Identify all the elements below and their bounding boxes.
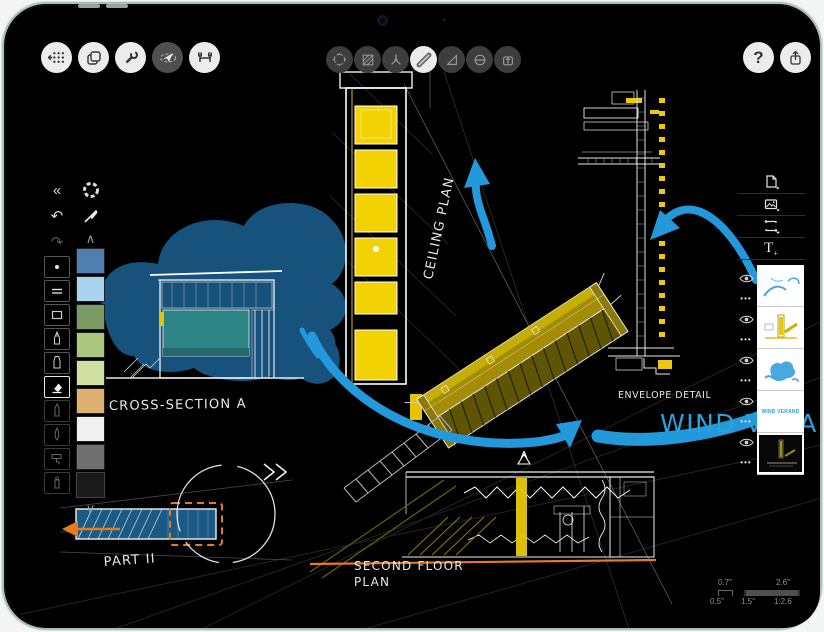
layer1-options-button[interactable]: ••• [736,290,756,306]
selection-button[interactable] [152,42,183,73]
scale-screen-small: 0.7″ [718,578,732,587]
tool-fineliner[interactable] [44,328,70,350]
swatch-white[interactable] [76,416,105,442]
help-button[interactable]: ? [743,42,774,73]
new-frame-button[interactable] [736,216,806,237]
redo-icon: ↷ [51,233,64,251]
eye-icon [739,396,754,407]
new-page-button[interactable] [736,172,806,193]
swatch-light-blue[interactable] [76,276,105,302]
layer5-options-button[interactable]: ••• [736,454,756,470]
layer5-visibility-toggle[interactable] [736,434,756,450]
tool-eraser[interactable] [44,376,70,398]
base-thumb-art [759,436,803,472]
import-image-button[interactable] [736,194,806,215]
fill-tool-button[interactable] [354,46,381,73]
move-icon [332,52,347,67]
cross-section-label: CROSS-SECTION A [109,397,247,414]
eye-icon [739,355,754,366]
microphone-dot [443,18,446,21]
tool-airbrush[interactable] [44,472,70,494]
tool-roller[interactable] [44,448,70,470]
layer3-options-button[interactable]: ••• [736,372,756,388]
pages-icon [86,50,102,66]
layer1-visibility-toggle[interactable] [736,270,756,286]
second-floor-label-2: PLAN [354,575,390,589]
move-tool-button[interactable] [326,46,353,73]
help-icon: ? [753,48,763,68]
eraser-icon [50,380,64,395]
axon-box [405,272,640,455]
yellow-thumb-art [759,310,803,346]
eye-icon [739,314,754,325]
layer4-options-button[interactable]: ••• [736,413,756,429]
scale-real-small: 0.5″ [710,597,724,606]
pencil-icon [53,403,61,419]
eyedropper-button[interactable] [78,204,104,228]
layer2-options-button[interactable]: ••• [736,331,756,347]
color-wheel-button[interactable] [78,178,104,202]
measure-bracket-icon [197,50,213,66]
triangle-ruler-icon [445,53,459,67]
drawing-canvas[interactable]: CROSS-SECTION A CEILING PLAN SECOND FLOO… [12,12,820,628]
marker-stroke-icon [416,52,432,68]
tool-double-line[interactable] [44,280,70,302]
add-frame-icon [763,218,780,235]
redo-button[interactable]: ↷ [44,230,70,254]
swatch-pale-green[interactable] [76,360,105,386]
undo-icon: ↶ [51,207,64,225]
slice-circle-icon [473,53,487,67]
layer-blue-wash-thumbnail[interactable] [757,349,804,391]
swatch-green[interactable] [76,332,105,358]
add-text-icon: T+ [764,240,778,258]
chevron-up-icon: ∧ [86,231,96,247]
chevron-down-icon: ∨ [86,501,96,517]
swatch-blue[interactable] [76,248,105,274]
filled-stroke-icon [50,309,64,321]
tool-pencil[interactable] [44,400,70,422]
swatch-scroll-down[interactable]: ∨ [86,500,96,518]
blob-thumb-art [759,352,803,388]
slice-tool-button[interactable] [466,46,493,73]
share-icon [788,50,803,66]
new-text-button[interactable]: T+ [736,238,806,259]
precision-button[interactable] [189,42,220,73]
mask-tool-button[interactable] [494,46,521,73]
swatch-olive-green[interactable] [76,304,105,330]
tool-dot-brush[interactable] [44,256,70,278]
pages-button[interactable] [78,42,109,73]
layer-title-thumbnail[interactable]: WIND VERAND [757,391,804,433]
swatch-gray[interactable] [76,444,105,470]
wrench-icon [123,50,139,66]
gallery-grid-icon [48,49,65,66]
layer2-visibility-toggle[interactable] [736,311,756,327]
layer-arrows-thumbnail[interactable] [757,265,804,307]
compass-tool-button[interactable] [382,46,409,73]
scale-real-large: 1:2.6 [774,597,792,606]
swatch-scroll-up[interactable]: ∧ [86,230,96,248]
paint-roller-icon [50,452,64,466]
ruler-tool-button[interactable] [438,46,465,73]
eye-icon [739,273,754,284]
marker-a-label: A [521,450,528,461]
swatch-tan[interactable] [76,388,105,414]
scale-screen-large: 2.6″ [776,578,790,587]
app-screen: CROSS-SECTION A CEILING PLAN SECOND FLOO… [12,12,820,628]
part-label: PART II [103,551,156,570]
front-camera [378,16,387,25]
screenshot-stage: CROSS-SECTION A CEILING PLAN SECOND FLOO… [0,0,824,632]
arrows-thumb-art [759,268,803,304]
brush-icon [52,427,62,443]
new-page-icon [763,174,780,191]
layer-base-drawing-thumbnail[interactable] [757,433,804,475]
paper-plane-icon [159,49,177,67]
ceiling-plan-label: CEILING PLAN [421,175,457,280]
scale-bracket [718,590,733,596]
volume-button-2 [106,4,128,8]
marker-icon [52,355,62,371]
layer4-visibility-toggle[interactable] [736,393,756,409]
color-wheel-icon [82,181,100,199]
tool-marker[interactable] [44,352,70,374]
layer-thumbnails: WIND VERAND [757,265,804,475]
collapse-sidebar-button[interactable]: « [44,178,70,202]
share-button[interactable] [780,42,811,73]
eyedropper-icon [83,208,99,224]
pen-tool-button[interactable] [410,46,437,73]
volume-button-1 [78,4,100,8]
tablet-device-frame: CROSS-SECTION A CEILING PLAN SECOND FLOO… [2,2,822,630]
airbrush-icon [52,475,62,491]
mask-import-icon [501,53,515,67]
layer-title-text: WIND VERAND [761,409,799,415]
layer3-visibility-toggle[interactable] [736,352,756,368]
fineliner-icon [52,331,62,347]
blue-wash-blob [101,203,346,384]
divider [737,259,805,260]
tool-filled-stroke[interactable] [44,304,70,326]
settings-button[interactable] [115,42,146,73]
tool-brush[interactable] [44,424,70,446]
scale-bar-segment [744,590,800,596]
layer-yellow-plans-thumbnail[interactable] [757,307,804,349]
swatch-black[interactable] [76,472,105,498]
gallery-button[interactable] [41,42,72,73]
collapse-icon: « [53,182,61,199]
add-image-icon [763,196,780,213]
scale-real-mid: 1.5″ [741,597,755,606]
layers-panel: T+ [736,172,806,260]
envelope-detail-label: ENVELOPE DETAIL [618,390,711,401]
second-floor-label-1: SECOND FLOOR [354,559,464,573]
eye-icon [739,437,754,448]
compass-icon [389,53,403,67]
undo-button[interactable]: ↶ [44,204,70,228]
ceiling-plan-tower [340,72,422,420]
double-line-icon [50,285,64,297]
dot-brush-icon [51,261,63,273]
scale-indicator[interactable]: 0.7″ 2.6″ 0.5″ 1.5″ 1:2.6 [710,578,810,606]
hatch-fill-icon [361,53,375,67]
